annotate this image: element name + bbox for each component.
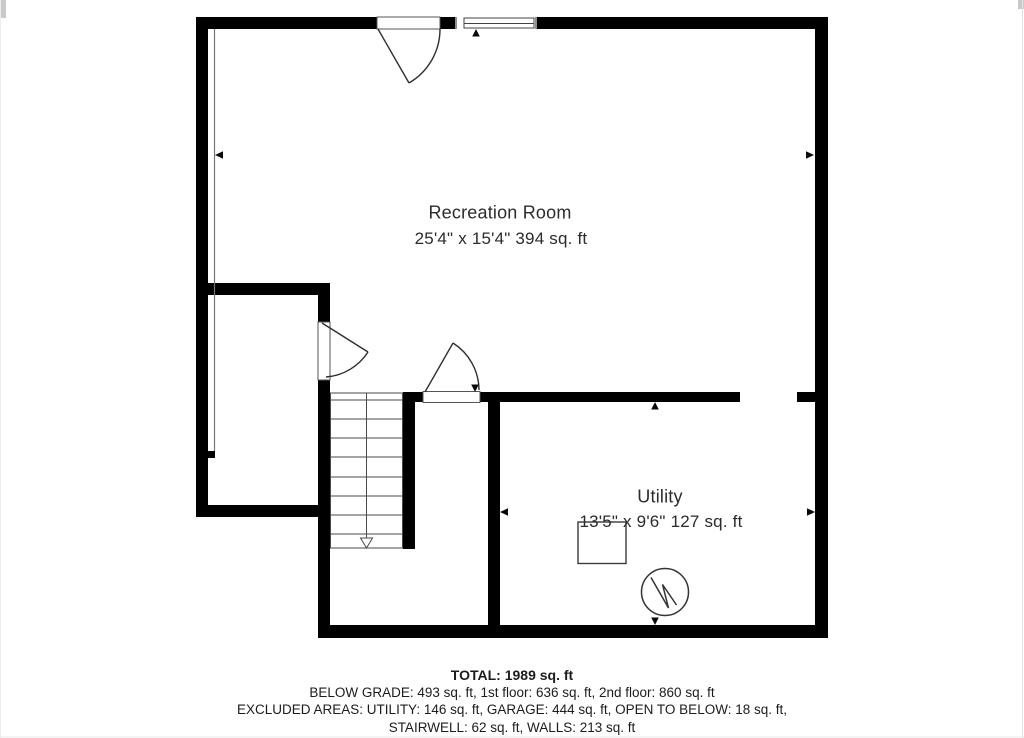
rec-width-arrow-left — [215, 151, 223, 159]
rec-height-arrow-top — [472, 29, 480, 37]
window-top — [455, 17, 537, 29]
util-width-arrow-left — [500, 508, 508, 516]
wall-closet-top — [196, 283, 330, 295]
recreation-room-dimensions: 25'4" x 15'4" 394 sq. ft — [415, 229, 588, 249]
wall-utility-left — [488, 392, 500, 638]
floor-plan-page: Recreation Room 25'4" x 15'4" 394 sq. ft… — [0, 0, 1024, 738]
doorway-utility — [740, 391, 797, 404]
wall-bottom — [318, 625, 828, 638]
summary-excluded-2: STAIRWELL: 62 sq. ft, WALLS: 213 sq. ft — [0, 719, 1024, 736]
rec-height-arrow-bottom — [471, 385, 479, 393]
summary-excluded: EXCLUDED AREAS: UTILITY: 146 sq. ft, GAR… — [0, 701, 1024, 718]
utility-room-label: Utility — [637, 487, 682, 508]
recreation-room-label: Recreation Room — [428, 203, 571, 224]
area-summary: TOTAL: 1989 sq. ft BELOW GRADE: 493 sq. … — [0, 667, 1024, 736]
summary-floors: BELOW GRADE: 493 sq. ft, 1st floor: 636 … — [0, 684, 1024, 701]
door-landing — [423, 343, 480, 403]
util-width-arrow-right — [807, 508, 815, 516]
wall-left — [196, 17, 208, 517]
wall-stair-right — [403, 392, 415, 549]
utility-room-dimensions: 13'5" x 9'6" 127 sq. ft — [579, 512, 742, 532]
water-heater-icon — [642, 569, 689, 616]
floor-plan-drawing — [0, 0, 1024, 738]
util-height-arrow-bottom — [651, 618, 659, 626]
wall-right — [815, 17, 828, 638]
door-top — [377, 17, 440, 83]
left-wall-lining — [208, 29, 215, 458]
rec-width-arrow-right — [806, 151, 814, 159]
door-closet — [318, 322, 368, 380]
stairs — [331, 393, 403, 548]
summary-total: TOTAL: 1989 sq. ft — [0, 667, 1024, 684]
walls — [196, 17, 828, 638]
stairs-down-arrow-icon — [361, 538, 373, 548]
util-height-arrow-top — [651, 402, 659, 410]
dimension-arrows — [215, 29, 815, 625]
wall-closet-bottom — [196, 505, 330, 517]
